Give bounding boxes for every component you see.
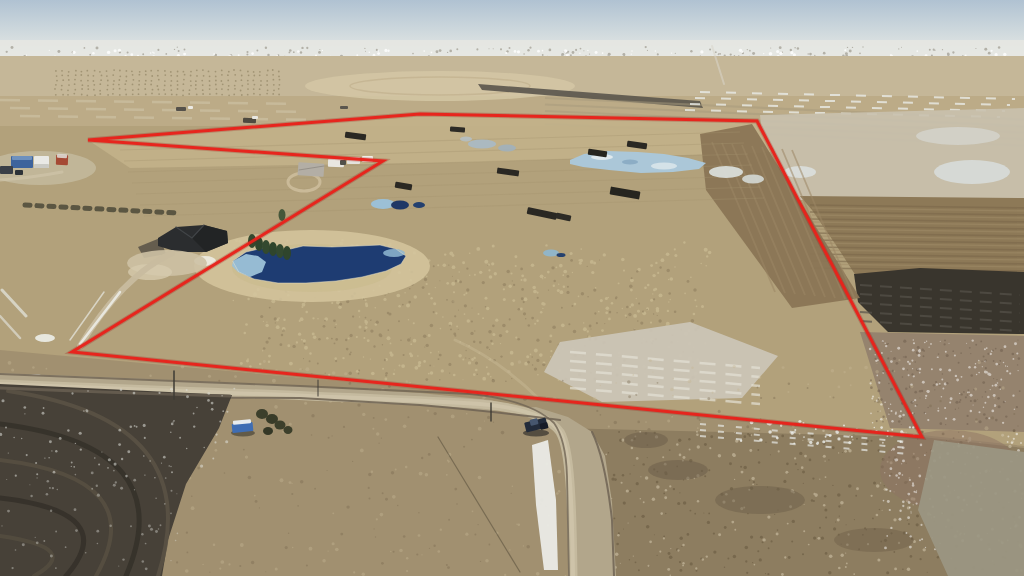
bush [256, 409, 268, 419]
pale-field-swirl [305, 71, 575, 101]
tiny-pond-ice [543, 250, 559, 257]
aerial-photo [0, 0, 1024, 576]
dirt-patch [648, 460, 708, 480]
right-gray-strip [760, 108, 1024, 200]
small-pond-gray-2 [498, 145, 516, 152]
dirt-patch [715, 486, 805, 514]
conifer-tree [269, 242, 277, 256]
dirt-patch [624, 432, 668, 448]
distant-farmstead-3 [340, 106, 348, 109]
conifer-tree [262, 240, 270, 254]
snow-patch-right-of-pond [709, 166, 743, 178]
dirt-patch [834, 528, 914, 552]
white-shed-shade [34, 164, 49, 168]
pond-pair-deep [391, 201, 409, 210]
conifer-tree [276, 244, 284, 258]
distant-farmstead-roof [252, 116, 258, 119]
pond-dot [413, 202, 425, 208]
tiny-pond-deep [557, 253, 566, 257]
snow-bit-left [35, 334, 55, 342]
distant-farmstead-2-roof [188, 106, 193, 109]
ice-pond-dark [622, 160, 638, 165]
ice-patch-right-3 [916, 127, 1000, 145]
bush [263, 427, 273, 435]
conifer-tree [283, 246, 291, 260]
small-pond-gray-1 [468, 140, 496, 149]
small-pond-gray-3 [460, 137, 472, 142]
ice-patch-right-2 [934, 160, 1010, 184]
distant-farmstead-2 [176, 107, 186, 111]
ice-pond-white-2 [651, 163, 677, 170]
blue-quonset-highlight [12, 156, 32, 160]
farm-vehicle [15, 170, 23, 175]
bush [275, 421, 286, 430]
bush [284, 426, 293, 434]
farm-vehicle [0, 166, 13, 174]
aerial-photo-stage [0, 0, 1024, 576]
snow-patch-right-of-pond-2 [742, 175, 764, 184]
red-shed-roof [57, 154, 67, 158]
